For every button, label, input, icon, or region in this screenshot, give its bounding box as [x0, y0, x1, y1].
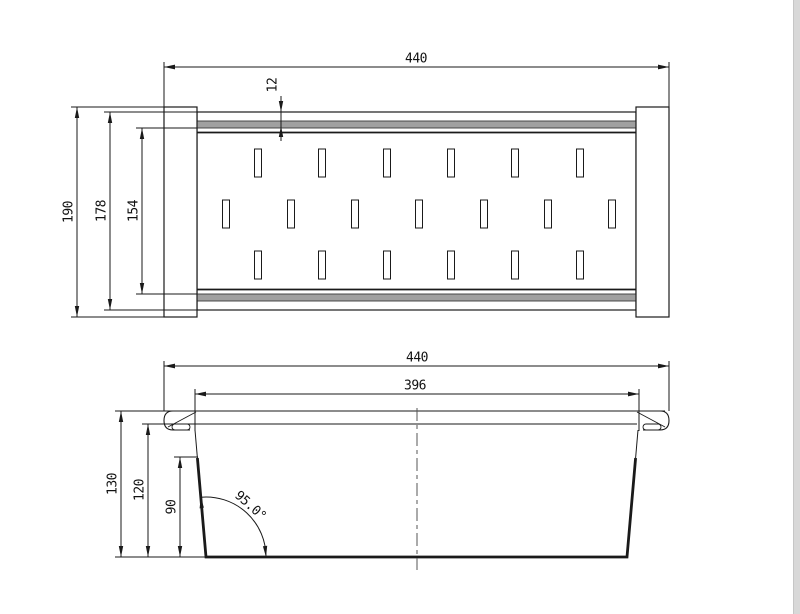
- colander-drawing: [0, 0, 800, 614]
- page-edge-strip: [793, 0, 800, 614]
- drain-slot: [545, 200, 552, 228]
- drain-slot: [577, 251, 584, 279]
- drain-slot: [609, 200, 616, 228]
- drain-slot: [512, 251, 519, 279]
- drain-slot: [448, 149, 455, 177]
- drain-slot: [481, 200, 488, 228]
- drain-slot: [384, 149, 391, 177]
- rolled-edge-bottom: [197, 294, 636, 301]
- side-view: [115, 361, 669, 570]
- left-bracket: [164, 107, 197, 317]
- dim-outer-height: [71, 107, 164, 317]
- drain-slot: [255, 149, 262, 177]
- rolled-edge-top: [197, 121, 636, 128]
- right-hook: [637, 411, 669, 430]
- drain-slot: [448, 251, 455, 279]
- drain-slot: [319, 149, 326, 177]
- dim-label-overall-height: 130: [107, 473, 120, 495]
- dim-label-rim-offset: 12: [267, 78, 280, 93]
- dim-label-side-overall-width: 440: [406, 352, 428, 365]
- drain-slot: [416, 200, 423, 228]
- dim-top-width: [164, 62, 669, 107]
- drain-slot: [384, 251, 391, 279]
- drain-slot: [352, 200, 359, 228]
- dim-label-basin-height: 120: [134, 479, 147, 501]
- dim-basin-height: [142, 424, 196, 557]
- dim-label-side-inner-width: 396: [404, 380, 426, 393]
- dim-label-top-width: 440: [405, 53, 427, 66]
- drain-slot: [319, 251, 326, 279]
- dim-label-inner-height: 154: [128, 200, 141, 222]
- dim-label-outer-height: 190: [63, 201, 76, 223]
- drain-slot: [288, 200, 295, 228]
- dim-label-body-height: 178: [96, 200, 109, 222]
- right-bracket: [636, 107, 669, 317]
- drain-slot: [223, 200, 230, 228]
- technical-drawing-canvas: 440 12 190 178 154 440 396 130 120 90 95…: [0, 0, 800, 614]
- drain-slot: [577, 149, 584, 177]
- top-view: [71, 62, 669, 317]
- dim-label-wall-height: 90: [166, 500, 179, 515]
- drain-slot: [255, 251, 262, 279]
- drain-slot: [512, 149, 519, 177]
- dim-overall-height: [115, 411, 206, 557]
- left-hook: [164, 411, 196, 430]
